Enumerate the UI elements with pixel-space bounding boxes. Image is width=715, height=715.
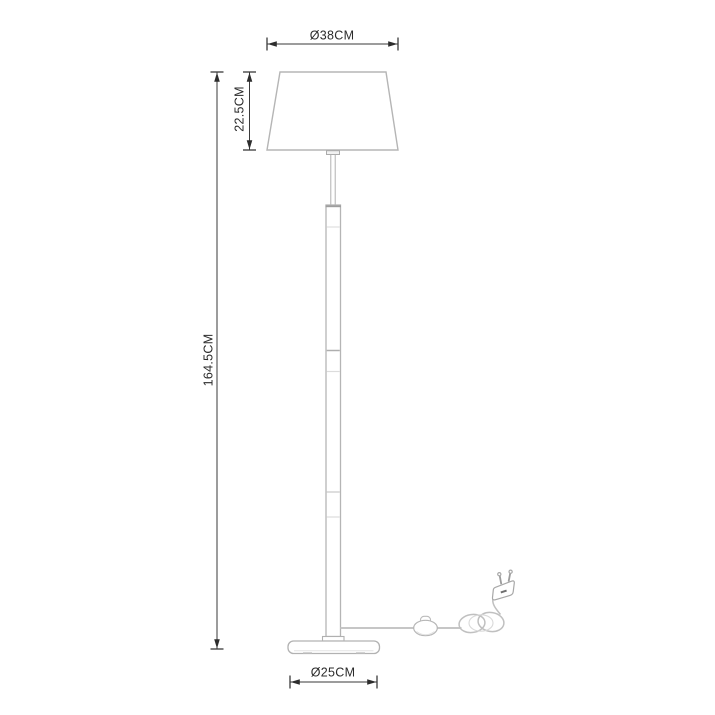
plug-pin-tip	[498, 573, 501, 576]
lamp-shade	[267, 72, 398, 150]
pole-flange	[323, 637, 345, 642]
shade-diameter-label: Ø38CM	[310, 29, 355, 44]
floor-lamp-drawing	[267, 72, 514, 654]
plug-pin-tip	[509, 570, 512, 573]
lamp-base	[288, 641, 380, 654]
total-height-label: 164.5CM	[202, 334, 217, 387]
pole	[326, 205, 341, 637]
diagram-svg	[0, 0, 715, 715]
plug-pin	[500, 575, 502, 584]
coiled-cord	[458, 600, 505, 635]
plug-pin	[509, 573, 511, 582]
base-diameter-label: Ø25CM	[311, 665, 356, 680]
stem-rod	[331, 155, 335, 206]
lamp-dimension-diagram: Ø38CM 22.5CM 164.5CM Ø25CM	[0, 0, 715, 715]
plug-body	[492, 581, 514, 600]
euro-plug	[492, 570, 514, 600]
shade-height-label: 22.5CM	[233, 86, 248, 132]
inline-switch	[414, 616, 438, 635]
shade-fitting	[327, 151, 340, 155]
